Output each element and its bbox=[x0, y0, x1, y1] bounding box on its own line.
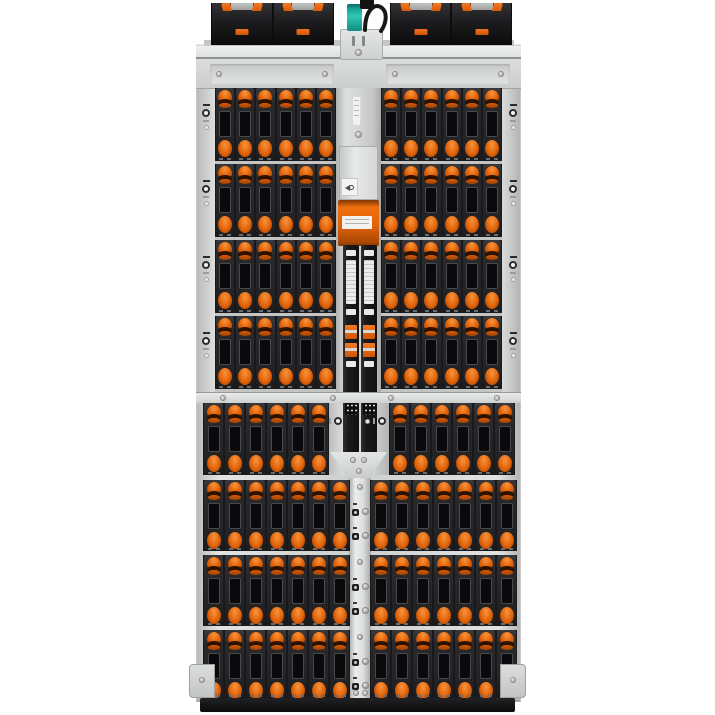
sled-module bbox=[452, 3, 511, 45]
orange-clip-icon bbox=[297, 29, 310, 35]
drive-carrier bbox=[371, 630, 390, 698]
thumbscrew-lock-icon bbox=[507, 104, 519, 130]
latch-release-icon bbox=[258, 251, 272, 258]
drive-window bbox=[239, 187, 251, 213]
drive-knob bbox=[319, 368, 333, 385]
carrier-feet bbox=[334, 695, 346, 697]
recessed-panel-right bbox=[386, 64, 510, 84]
drive-carrier bbox=[277, 240, 295, 313]
carrier-feet bbox=[385, 158, 397, 160]
drive-carrier bbox=[455, 555, 474, 626]
drive-window bbox=[271, 426, 283, 452]
sled-notch bbox=[292, 3, 314, 10]
drive-knob bbox=[404, 368, 418, 385]
drive-window bbox=[396, 503, 408, 529]
drive-window bbox=[486, 263, 498, 289]
drive-knob bbox=[291, 607, 305, 624]
carrier-feet bbox=[480, 548, 492, 550]
latch-release-icon bbox=[291, 414, 305, 421]
drive-knob bbox=[291, 455, 305, 472]
latch-release-icon bbox=[416, 491, 430, 498]
thumbscrew-lock-icon bbox=[507, 332, 519, 358]
drive-carrier bbox=[225, 630, 244, 698]
carrier-feet bbox=[259, 158, 271, 160]
mid-divider-band bbox=[196, 392, 521, 403]
carrier-feet bbox=[239, 234, 251, 236]
latch-release-icon bbox=[404, 251, 418, 258]
drive-carrier bbox=[236, 164, 254, 237]
drive-window bbox=[229, 426, 241, 452]
latch-release-icon bbox=[333, 566, 347, 573]
drive-window bbox=[417, 503, 429, 529]
carrier-feet bbox=[259, 310, 271, 312]
drive-knob bbox=[312, 455, 326, 472]
drive-knob bbox=[416, 607, 430, 624]
latch-release-icon bbox=[404, 175, 418, 182]
drive-carrier bbox=[497, 480, 516, 551]
carrier-feet bbox=[300, 386, 312, 388]
drive-knob bbox=[228, 532, 242, 549]
drive-knob bbox=[333, 532, 347, 549]
drive-row bbox=[215, 88, 336, 161]
drive-knob bbox=[228, 455, 242, 472]
drive-knob bbox=[445, 140, 459, 157]
latch-release-icon bbox=[207, 641, 221, 648]
lock-screw-pair bbox=[352, 605, 369, 616]
drive-window bbox=[320, 111, 332, 137]
drive-bank-upper-left bbox=[215, 88, 336, 392]
carrier-feet bbox=[459, 695, 471, 697]
latch-release-icon bbox=[258, 175, 272, 182]
carrier-feet bbox=[486, 386, 498, 388]
latch-release-icon bbox=[435, 414, 449, 421]
drive-window bbox=[239, 339, 251, 365]
drive-window bbox=[478, 426, 490, 452]
screw-icon bbox=[362, 583, 369, 590]
drive-carrier bbox=[225, 403, 244, 475]
drive-carrier bbox=[443, 240, 461, 313]
drive-knob bbox=[479, 532, 493, 549]
carrier-feet bbox=[466, 310, 478, 312]
drive-carrier bbox=[246, 630, 265, 698]
corner-bracket-left bbox=[189, 664, 215, 698]
rail-label-sticker bbox=[346, 260, 356, 304]
screw-icon bbox=[199, 677, 205, 683]
drive-knob bbox=[291, 532, 305, 549]
drive-carrier bbox=[288, 630, 307, 698]
drive-window bbox=[486, 339, 498, 365]
recessed-panel-left bbox=[210, 64, 334, 84]
drive-knob bbox=[445, 292, 459, 309]
carrier-feet bbox=[313, 695, 325, 697]
latch-release-icon bbox=[238, 175, 252, 182]
screw-icon bbox=[330, 395, 336, 401]
drive-window bbox=[385, 187, 397, 213]
drive-window bbox=[259, 187, 271, 213]
lock-icon bbox=[352, 608, 359, 615]
latch-release-icon bbox=[424, 251, 438, 258]
lock-bar-icon bbox=[353, 677, 357, 679]
drive-window bbox=[280, 263, 292, 289]
drive-knob bbox=[299, 368, 313, 385]
carrier-feet bbox=[334, 623, 346, 625]
carrier-feet bbox=[385, 234, 397, 236]
lock-bar-icon bbox=[353, 653, 357, 655]
carrier-feet bbox=[457, 472, 469, 474]
orange-clip-icon bbox=[475, 29, 488, 35]
drive-window bbox=[300, 111, 312, 137]
drive-knob bbox=[218, 368, 232, 385]
latch-release-icon bbox=[333, 641, 347, 648]
carrier-feet bbox=[320, 234, 332, 236]
carrier-feet bbox=[480, 623, 492, 625]
carrier-feet bbox=[438, 548, 450, 550]
drive-carrier bbox=[330, 555, 349, 626]
drive-window bbox=[300, 263, 312, 289]
drive-window bbox=[501, 578, 513, 604]
drive-window bbox=[250, 578, 262, 604]
carrier-feet bbox=[219, 158, 231, 160]
sled-notch bbox=[471, 3, 493, 10]
latch-release-icon bbox=[228, 414, 242, 421]
drive-window bbox=[405, 339, 417, 365]
drive-carrier bbox=[476, 630, 495, 698]
screw-icon bbox=[220, 395, 226, 401]
drive-row-5-right bbox=[389, 403, 515, 475]
sled-bank-left bbox=[211, 3, 334, 45]
drive-window bbox=[438, 578, 450, 604]
drive-window bbox=[405, 263, 417, 289]
drive-carrier bbox=[297, 240, 315, 313]
latch-release-icon bbox=[238, 251, 252, 258]
drive-knob bbox=[238, 140, 252, 157]
drive-window bbox=[271, 503, 283, 529]
latch-release-icon bbox=[228, 491, 242, 498]
drive-carrier bbox=[225, 480, 244, 551]
screw-icon bbox=[362, 690, 368, 696]
latch-release-icon bbox=[258, 327, 272, 334]
carrier-feet bbox=[425, 234, 437, 236]
orange-cable-clip bbox=[345, 343, 357, 357]
drive-knob bbox=[404, 140, 418, 157]
drive-window bbox=[446, 339, 458, 365]
drive-window bbox=[499, 426, 511, 452]
drive-knob bbox=[238, 216, 252, 233]
thumbscrew-lock-icon bbox=[200, 180, 212, 206]
drive-carrier bbox=[288, 555, 307, 626]
corner-bracket-right bbox=[500, 664, 526, 698]
drive-window bbox=[292, 578, 304, 604]
latch-release-icon bbox=[500, 566, 514, 573]
drive-window bbox=[239, 263, 251, 289]
drive-window bbox=[313, 503, 325, 529]
screw-icon bbox=[362, 682, 369, 689]
screw-icon bbox=[357, 634, 363, 640]
lock-bar-icon bbox=[353, 527, 357, 529]
carrier-feet bbox=[396, 623, 408, 625]
drive-window bbox=[446, 187, 458, 213]
lock-icon bbox=[352, 584, 359, 591]
latch-release-icon bbox=[479, 491, 493, 498]
screw-icon bbox=[357, 484, 363, 490]
drive-knob bbox=[485, 368, 499, 385]
drive-window bbox=[271, 653, 283, 679]
drive-knob bbox=[299, 216, 313, 233]
drive-window bbox=[425, 263, 437, 289]
latch-release-icon bbox=[207, 491, 221, 498]
rail-tab bbox=[364, 250, 374, 256]
latch-release-icon bbox=[249, 414, 263, 421]
drive-carrier bbox=[309, 630, 328, 698]
drive-carrier bbox=[392, 555, 411, 626]
drive-carrier bbox=[317, 164, 335, 237]
carrier-feet bbox=[208, 548, 220, 550]
latch-release-icon bbox=[395, 491, 409, 498]
drive-carrier bbox=[216, 240, 234, 313]
drive-carrier bbox=[443, 88, 461, 161]
drive-carrier bbox=[413, 480, 432, 551]
lock-bar-icon bbox=[353, 602, 357, 604]
latch-release-icon bbox=[384, 175, 398, 182]
carrier-feet bbox=[415, 472, 427, 474]
drive-carrier bbox=[297, 164, 315, 237]
orange-module-label bbox=[342, 216, 372, 229]
drive-row bbox=[215, 316, 336, 389]
drive-knob bbox=[437, 607, 451, 624]
latch-release-icon bbox=[333, 491, 347, 498]
drive-knob bbox=[465, 216, 479, 233]
drive-knob bbox=[384, 140, 398, 157]
drive-carrier bbox=[297, 88, 315, 161]
carrier-feet bbox=[292, 623, 304, 625]
drive-window bbox=[459, 503, 471, 529]
drive-knob bbox=[333, 607, 347, 624]
drive-carrier bbox=[402, 316, 420, 389]
drive-carrier bbox=[382, 316, 400, 389]
latch-release-icon bbox=[458, 491, 472, 498]
lock-bar-icon bbox=[353, 503, 357, 505]
drive-knob bbox=[270, 455, 284, 472]
carrier-feet bbox=[486, 158, 498, 160]
drive-carrier bbox=[297, 316, 315, 389]
drive-knob bbox=[384, 368, 398, 385]
carrier-feet bbox=[229, 695, 241, 697]
drive-window bbox=[466, 339, 478, 365]
drive-window bbox=[229, 653, 241, 679]
drive-window bbox=[219, 187, 231, 213]
latch-release-icon bbox=[445, 251, 459, 258]
latch-release-icon bbox=[465, 99, 479, 106]
drive-window bbox=[415, 426, 427, 452]
orange-tab-icon bbox=[282, 3, 293, 11]
drive-carrier bbox=[277, 316, 295, 389]
drive-carrier bbox=[204, 403, 223, 475]
drive-window bbox=[405, 187, 417, 213]
latch-release-icon bbox=[218, 99, 232, 106]
drive-carrier bbox=[309, 403, 328, 475]
latch-release-icon bbox=[291, 566, 305, 573]
drive-knob bbox=[207, 532, 221, 549]
drive-knob bbox=[319, 216, 333, 233]
carrier-feet bbox=[250, 472, 262, 474]
orange-cable-clip bbox=[363, 325, 375, 339]
drive-carrier bbox=[267, 480, 286, 551]
drive-row-7-right bbox=[370, 555, 517, 626]
carrier-feet bbox=[375, 623, 387, 625]
drive-row bbox=[381, 88, 502, 161]
drive-carrier bbox=[432, 403, 451, 475]
drive-carrier bbox=[256, 88, 274, 161]
drive-window bbox=[320, 339, 332, 365]
drive-knob bbox=[312, 532, 326, 549]
carrier-feet bbox=[417, 548, 429, 550]
latch-release-icon bbox=[299, 175, 313, 182]
latch-release-icon bbox=[218, 175, 232, 182]
drive-knob bbox=[465, 368, 479, 385]
drive-carrier bbox=[483, 88, 501, 161]
latch-release-icon bbox=[374, 641, 388, 648]
drive-window bbox=[250, 503, 262, 529]
drive-window bbox=[250, 653, 262, 679]
drive-carrier bbox=[463, 316, 481, 389]
carrier-feet bbox=[271, 472, 283, 474]
carrier-feet bbox=[313, 472, 325, 474]
drive-carrier bbox=[216, 164, 234, 237]
screw-icon bbox=[322, 71, 328, 77]
orange-tab-icon bbox=[313, 3, 324, 11]
drive-window bbox=[300, 339, 312, 365]
rail-tab bbox=[346, 361, 356, 367]
drive-row bbox=[381, 316, 502, 389]
drive-window bbox=[446, 111, 458, 137]
drive-row-6-right bbox=[370, 480, 517, 551]
drive-carrier bbox=[267, 630, 286, 698]
latch-release-icon bbox=[416, 566, 430, 573]
latch-release-icon bbox=[238, 99, 252, 106]
drive-window bbox=[438, 653, 450, 679]
spine-label-sticker bbox=[352, 96, 361, 126]
lock-icon bbox=[352, 659, 359, 666]
carrier-feet bbox=[229, 548, 241, 550]
latch-release-icon bbox=[500, 641, 514, 648]
carrier-feet bbox=[385, 386, 397, 388]
carrier-feet bbox=[208, 472, 220, 474]
drive-knob bbox=[374, 532, 388, 549]
drive-window bbox=[208, 503, 220, 529]
carrier-feet bbox=[259, 234, 271, 236]
sled-module bbox=[274, 3, 334, 45]
drive-carrier bbox=[413, 630, 432, 698]
carrier-feet bbox=[405, 386, 417, 388]
carrier-feet bbox=[438, 695, 450, 697]
drive-knob bbox=[458, 607, 472, 624]
latch-release-icon bbox=[479, 566, 493, 573]
drive-carrier bbox=[330, 630, 349, 698]
carrier-feet bbox=[480, 695, 492, 697]
latch-release-icon bbox=[312, 641, 326, 648]
drive-knob bbox=[435, 455, 449, 472]
drive-window bbox=[405, 111, 417, 137]
latch-release-icon bbox=[485, 251, 499, 258]
screw-icon bbox=[362, 532, 369, 539]
drive-row-8-right bbox=[370, 630, 517, 698]
carrier-feet bbox=[425, 386, 437, 388]
drive-carrier bbox=[256, 164, 274, 237]
drive-carrier bbox=[455, 480, 474, 551]
latch-release-icon bbox=[207, 414, 221, 421]
drive-window bbox=[436, 426, 448, 452]
lock-screw-pair bbox=[352, 506, 369, 517]
drive-knob bbox=[279, 368, 293, 385]
drive-knob bbox=[319, 140, 333, 157]
screw-icon bbox=[350, 457, 356, 463]
latch-release-icon bbox=[270, 566, 284, 573]
sled-bank-right bbox=[390, 3, 512, 45]
drive-knob bbox=[279, 216, 293, 233]
drive-carrier bbox=[463, 88, 481, 161]
thumbscrew-lock-icon bbox=[365, 415, 391, 427]
drive-window bbox=[425, 339, 437, 365]
drive-window bbox=[486, 187, 498, 213]
drive-carrier bbox=[277, 88, 295, 161]
latch-release-icon bbox=[424, 327, 438, 334]
orange-clip-icon bbox=[235, 29, 248, 35]
carrier-feet bbox=[405, 158, 417, 160]
latch-release-icon bbox=[218, 251, 232, 258]
latch-release-icon bbox=[414, 414, 428, 421]
latch-release-icon bbox=[270, 641, 284, 648]
drive-carrier bbox=[382, 240, 400, 313]
carrier-feet bbox=[271, 695, 283, 697]
drive-window bbox=[466, 111, 478, 137]
lock-screw-pair bbox=[352, 530, 369, 541]
drive-window bbox=[385, 111, 397, 137]
drive-row-6-left bbox=[203, 480, 350, 551]
drive-window bbox=[396, 578, 408, 604]
rail-tab bbox=[346, 250, 356, 256]
thumbscrew-lock-icon bbox=[200, 256, 212, 282]
latch-release-icon bbox=[437, 491, 451, 498]
drive-knob bbox=[258, 292, 272, 309]
thumbscrew-lock-icon bbox=[507, 180, 519, 206]
screw-icon bbox=[355, 131, 362, 138]
drive-knob bbox=[258, 216, 272, 233]
drive-knob bbox=[384, 292, 398, 309]
carrier-feet bbox=[300, 234, 312, 236]
drive-carrier bbox=[392, 630, 411, 698]
drive-window bbox=[446, 263, 458, 289]
thumbscrew-lock-icon bbox=[507, 256, 519, 282]
carrier-feet bbox=[320, 158, 332, 160]
drive-window bbox=[385, 263, 397, 289]
drive-window bbox=[208, 578, 220, 604]
drive-knob bbox=[258, 140, 272, 157]
screw-icon bbox=[216, 71, 222, 77]
carrier-feet bbox=[501, 623, 513, 625]
drive-window bbox=[438, 503, 450, 529]
latch-release-icon bbox=[299, 99, 313, 106]
sled-notch bbox=[410, 3, 432, 10]
drive-carrier bbox=[236, 240, 254, 313]
drive-knob bbox=[249, 607, 263, 624]
drive-row-5-left bbox=[203, 403, 329, 475]
drive-carrier bbox=[474, 403, 493, 475]
drive-bank-upper-right bbox=[381, 88, 502, 392]
drive-carrier bbox=[216, 88, 234, 161]
latch-release-icon bbox=[228, 641, 242, 648]
drive-window bbox=[239, 111, 251, 137]
base-bar bbox=[200, 698, 515, 712]
